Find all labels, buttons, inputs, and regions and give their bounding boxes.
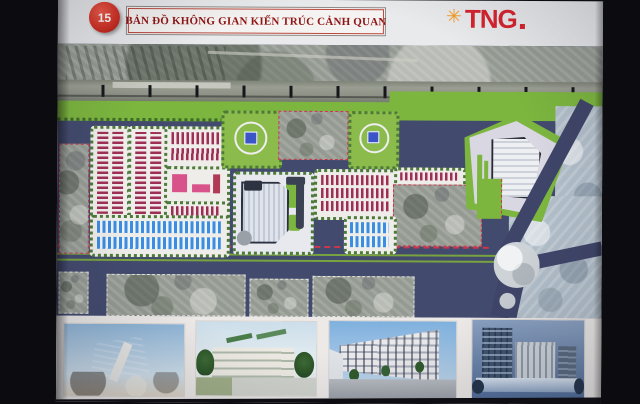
slide-number: 15	[98, 10, 111, 24]
rowhouse-strip	[97, 132, 108, 214]
starburst-icon: ✳	[446, 7, 462, 26]
boulevard-median-2	[57, 259, 499, 263]
render-tree	[574, 378, 584, 394]
red-rowhouse-block-col-1	[90, 126, 131, 222]
school-plot	[233, 171, 314, 254]
existing-parcel	[106, 274, 245, 317]
field-road	[208, 51, 418, 62]
photo-edge-shadow-left	[56, 0, 70, 402]
blue-rowhouse-block-west	[90, 215, 230, 258]
slide-number-badge: 15	[89, 2, 120, 33]
rowhouse-strip-blue	[97, 237, 221, 250]
render-building	[212, 347, 294, 377]
existing-parcel	[249, 279, 308, 317]
rowhouse-strip	[321, 188, 389, 198]
render-tree	[294, 352, 314, 378]
master-plan-map	[56, 44, 602, 319]
render-commercial-complex	[472, 320, 584, 401]
tng-logo: ✳ TNG	[446, 3, 525, 35]
rowhouse-strip	[400, 172, 457, 180]
kindergarten-building	[192, 184, 210, 192]
kindergarten-building	[213, 174, 220, 193]
park-west	[221, 110, 282, 168]
slide-title-box: BẢN ĐỒ KHÔNG GIAN KIẾN TRÚC CẢNH QUAN	[126, 6, 386, 36]
render-tower	[482, 328, 512, 380]
rowhouse-strip	[321, 175, 389, 185]
blue-rowhouse-block-east	[344, 216, 397, 254]
render-lit-base	[476, 378, 580, 393]
rowhouse-strip	[135, 132, 146, 214]
park-plaza-blue	[367, 131, 379, 143]
roundabout-small-island	[499, 293, 515, 309]
roundabout	[494, 242, 540, 288]
rowhouse-strip	[171, 132, 220, 144]
render-road	[329, 379, 456, 399]
render-block	[558, 346, 576, 382]
red-rowhouse-block-east	[314, 169, 398, 220]
rowhouse-strip-blue	[97, 221, 221, 234]
school-roof-dark	[244, 181, 262, 191]
render-tree	[196, 349, 214, 375]
render-lowrise-school	[196, 321, 316, 396]
kindergarten-building	[172, 174, 187, 192]
render-tree	[415, 361, 424, 372]
presentation-slide: 15 BẢN ĐỒ KHÔNG GIAN KIẾN TRÚC CẢNH QUAN…	[56, 0, 603, 404]
render-tree	[472, 380, 484, 394]
photographed-screen: 15 BẢN ĐỒ KHÔNG GIAN KIẾN TRÚC CẢNH QUAN…	[0, 0, 640, 403]
school-path	[296, 181, 304, 229]
rowhouse-strip	[112, 132, 123, 214]
park-plaza-blue	[244, 132, 257, 145]
rowhouse-strip-blue	[350, 222, 389, 233]
kindergarten-block	[164, 166, 230, 204]
rowhouse-strip	[171, 148, 220, 160]
render-ground	[196, 377, 316, 396]
render-shophouse-street	[329, 321, 456, 399]
green-strip-near-roundabout	[477, 179, 502, 219]
rowhouse-strip-blue	[350, 236, 389, 247]
park-east	[348, 111, 399, 169]
field-texture	[66, 46, 226, 85]
slide-title: BẢN ĐỒ KHÔNG GIAN KIẾN TRÚC CẢNH QUAN	[125, 14, 386, 27]
red-rowhouse-block-col-2	[128, 126, 169, 222]
existing-parcel	[312, 276, 414, 318]
rowhouse-strip	[321, 201, 389, 211]
rowhouse-strip	[150, 132, 161, 214]
photo-bottom-edge	[56, 397, 603, 404]
school-court-circle	[237, 231, 252, 246]
photo-edge-shadow-right	[593, 1, 603, 404]
render-ground	[64, 372, 184, 397]
render-tree	[381, 365, 390, 376]
render-block	[515, 342, 555, 382]
retained-parcel-center	[278, 111, 348, 160]
render-gallery	[56, 316, 601, 404]
tng-logo-text: TNG	[465, 6, 517, 32]
render-cultural-center	[64, 324, 184, 397]
tng-logo-dot	[520, 23, 525, 28]
